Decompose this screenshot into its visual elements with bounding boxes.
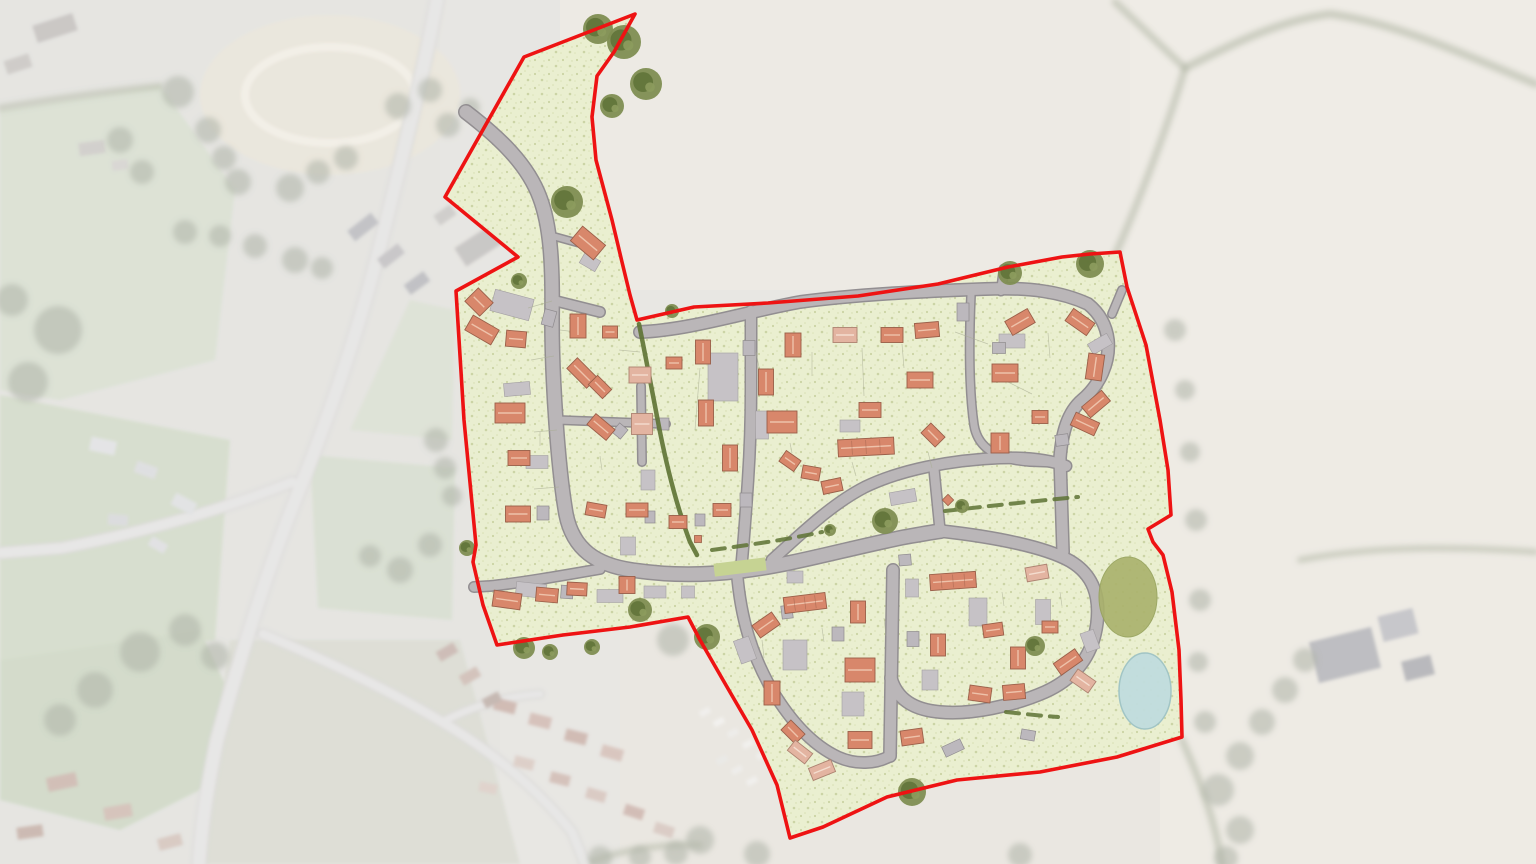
proposed-house — [567, 582, 588, 596]
driveway-parking — [641, 470, 655, 490]
tree-symbol — [600, 94, 624, 118]
proposed-house — [1032, 411, 1048, 424]
driveway-parking — [906, 579, 919, 597]
attenuation-pond — [1119, 653, 1171, 729]
proposed-house — [505, 330, 526, 348]
proposed-house — [629, 367, 651, 383]
proposed-house — [851, 601, 866, 623]
proposed-house — [506, 506, 531, 522]
tree-symbol — [551, 186, 583, 218]
garage-block — [695, 514, 705, 526]
tree-symbol — [459, 540, 475, 556]
proposed-house — [495, 403, 525, 423]
proposed-house — [669, 516, 687, 529]
proposed-house — [907, 372, 933, 388]
driveway-parking — [644, 586, 666, 598]
tree-symbol — [628, 598, 652, 622]
proposed-house — [1042, 621, 1058, 633]
tree-symbol — [955, 499, 969, 513]
proposed-house — [666, 357, 682, 369]
proposed-house — [585, 502, 607, 518]
proposed-house — [1002, 684, 1025, 701]
proposed-house — [929, 571, 976, 590]
proposed-house — [881, 328, 903, 343]
tree-symbol — [542, 644, 558, 660]
proposed-house — [696, 340, 711, 364]
grass-mound — [1099, 557, 1157, 637]
proposed-house — [767, 411, 797, 433]
proposed-house — [759, 369, 774, 395]
proposed-house — [982, 622, 1004, 638]
estate-road — [890, 570, 893, 756]
proposed-house — [785, 333, 801, 357]
proposed-house — [603, 326, 618, 338]
proposed-house — [713, 504, 731, 517]
tree-symbol — [511, 273, 527, 289]
tree-symbol — [1025, 636, 1045, 656]
tree-symbol — [630, 68, 662, 100]
driveway-parking — [783, 640, 807, 670]
driveway-parking — [922, 670, 938, 690]
proposed-house — [833, 328, 857, 343]
proposed-house — [764, 681, 780, 705]
driveway-parking — [503, 381, 530, 396]
driveway-parking — [682, 586, 695, 598]
garage-block — [740, 493, 752, 507]
garage-block — [1055, 434, 1069, 447]
proposed-house — [848, 732, 872, 749]
driveway-parking — [708, 353, 738, 401]
proposed-house — [626, 503, 648, 517]
garage-block — [743, 341, 755, 356]
garage-block — [832, 627, 844, 641]
garage-block — [537, 506, 549, 520]
proposed-house — [801, 465, 821, 481]
proposed-house — [508, 451, 530, 466]
proposed-house — [1011, 647, 1026, 669]
proposed-house — [699, 400, 714, 426]
garage-block — [993, 343, 1006, 354]
proposed-house — [859, 403, 881, 418]
screenshot-root — [0, 0, 1536, 864]
proposed-house — [570, 314, 586, 338]
garage-block — [899, 554, 912, 566]
driveway-parking — [840, 420, 860, 432]
garage-block — [957, 303, 969, 321]
estate-road — [934, 469, 940, 530]
proposed-house — [492, 590, 522, 610]
proposed-house — [723, 445, 738, 471]
proposed-house — [991, 433, 1009, 453]
proposed-house — [931, 634, 946, 656]
roof-ridge — [570, 589, 584, 590]
proposed-house — [1085, 353, 1104, 381]
driveway-parking — [787, 571, 803, 583]
tree-symbol — [584, 639, 600, 655]
proposed-house — [619, 577, 635, 594]
masterplan-aerial-map — [0, 0, 1536, 864]
proposed-house — [632, 414, 653, 435]
driveway-parking — [969, 598, 987, 626]
driveway-parking — [621, 537, 636, 555]
proposed-house — [914, 321, 939, 338]
proposed-house — [968, 685, 992, 703]
proposed-house — [535, 587, 558, 603]
garage-block — [907, 632, 919, 647]
tree-symbol — [824, 524, 836, 536]
proposed-house — [992, 364, 1018, 382]
driveway-parking — [756, 411, 769, 439]
proposed-house — [845, 658, 875, 682]
proposed-house — [900, 728, 924, 746]
tree-symbol — [872, 508, 898, 534]
proposed-house — [838, 437, 895, 457]
driveway-parking — [842, 692, 864, 716]
garage-block — [1020, 729, 1036, 741]
small-structure — [695, 536, 702, 543]
